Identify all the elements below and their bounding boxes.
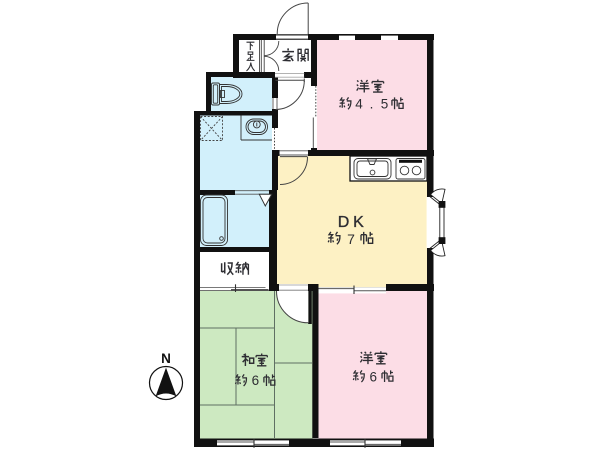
svg-text:4: 4 xyxy=(355,97,363,112)
svg-text:D: D xyxy=(338,214,350,231)
svg-text:5: 5 xyxy=(381,97,389,112)
svg-text:.: . xyxy=(370,97,374,112)
svg-text:6: 6 xyxy=(370,370,378,385)
svg-text:N: N xyxy=(161,351,171,366)
svg-text:K: K xyxy=(353,214,364,231)
svg-text:7: 7 xyxy=(347,231,355,247)
svg-text:6: 6 xyxy=(252,373,260,388)
